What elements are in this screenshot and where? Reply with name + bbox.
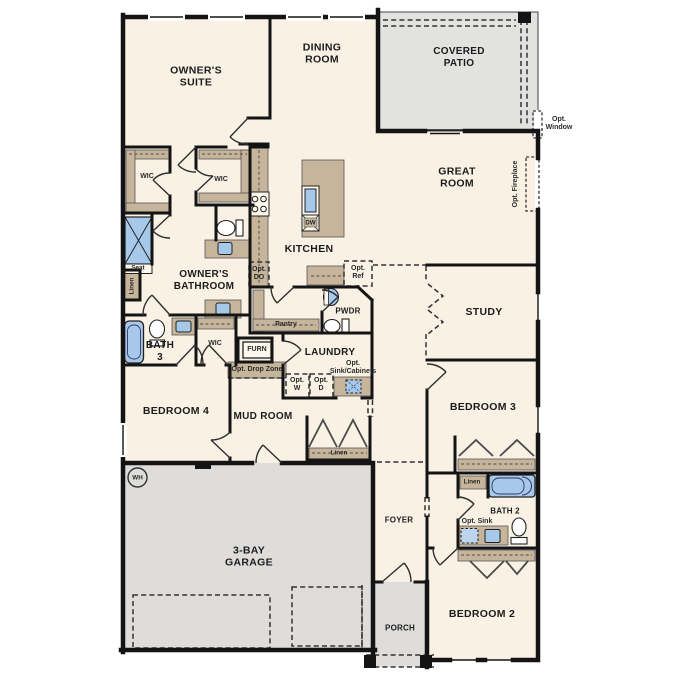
label-bedroom-2: BEDROOM 2 <box>435 608 530 620</box>
label-bedroom-3: BEDROOM 3 <box>436 401 531 413</box>
bedroom2-closet-shelf <box>458 550 535 561</box>
floorplan-drawing <box>0 0 687 687</box>
label-opt-do: Opt. DO <box>248 266 270 283</box>
label-linen-hall: Linen <box>324 449 354 456</box>
label-furn: FURN <box>242 346 272 354</box>
label-owners-bathroom: OWNER'S BATHROOM <box>167 269 242 293</box>
label-foyer: FOYER <box>374 515 424 524</box>
label-kitchen: KITCHEN <box>264 243 354 255</box>
floorplan-page: OWNER'S SUITE DINING ROOM COVERED PATIO … <box>0 0 687 687</box>
label-covered-patio: COVERED PATIO <box>428 46 490 70</box>
label-wic-1: WIC <box>132 173 162 181</box>
pwdr-toilet <box>324 320 340 333</box>
owners-toilet <box>217 221 235 236</box>
label-linen-owners: Linen <box>128 272 135 300</box>
label-pantry: Pantry <box>264 321 309 329</box>
label-wh: WH <box>128 474 148 481</box>
covered-patio-area <box>378 12 538 131</box>
island-sink <box>305 189 316 212</box>
laundry-opt-sink <box>346 380 361 393</box>
label-study: STUDY <box>449 306 519 318</box>
label-dw: DW <box>301 219 321 226</box>
label-wic-2: WIC <box>206 176 236 184</box>
wic3-shelf <box>198 318 234 329</box>
label-wic-3: WIC <box>200 340 230 348</box>
label-pwdr: PWDR <box>326 306 371 315</box>
porch-post-left <box>364 655 376 668</box>
bath2-opt-sink <box>461 529 478 544</box>
label-opt-fireplace: Opt. Fireplace <box>512 158 520 210</box>
label-opt-ref: Opt. Ref <box>347 265 369 282</box>
label-opt-w: Opt. W <box>287 377 307 394</box>
label-opt-sink: Opt. Sink <box>450 518 504 526</box>
bath2-sink <box>485 530 500 543</box>
owners-sink-2 <box>216 303 230 315</box>
kitchen-lower-counter <box>307 266 344 285</box>
label-porch: PORCH <box>375 623 425 632</box>
bedroom3-closet-shelf <box>458 459 535 470</box>
floor-fills <box>123 12 538 667</box>
patio-post <box>518 12 531 23</box>
label-mud-room: MUD ROOM <box>221 411 306 423</box>
label-bedroom-4: BEDROOM 4 <box>129 405 224 417</box>
label-bath-3: BATH 3 <box>144 340 176 364</box>
label-bath-2: BATH 2 <box>480 506 530 515</box>
label-dining-room: DINING ROOM <box>295 42 350 67</box>
bath3-toilet <box>150 320 165 338</box>
label-opt-drop-zone: Opt. Drop Zone <box>227 366 287 374</box>
label-laundry: LAUNDRY <box>290 347 370 359</box>
bath2-toilet <box>512 518 526 536</box>
bath3-sink <box>176 321 191 332</box>
owners-sink-1 <box>218 243 232 255</box>
label-opt-d: Opt. D <box>311 377 331 394</box>
porch-post-right <box>420 655 432 668</box>
label-linen-bath2: Linen <box>457 478 487 485</box>
label-great-room: GREAT ROOM <box>430 166 485 191</box>
label-owners-suite: OWNER'S SUITE <box>161 65 231 90</box>
label-seat: Seat <box>123 264 153 271</box>
label-opt-window: Opt. Window <box>542 116 576 133</box>
label-opt-sink-cabinets: Opt. Sink/Cabinets <box>329 360 377 377</box>
label-garage: 3-BAY GARAGE <box>217 545 282 570</box>
